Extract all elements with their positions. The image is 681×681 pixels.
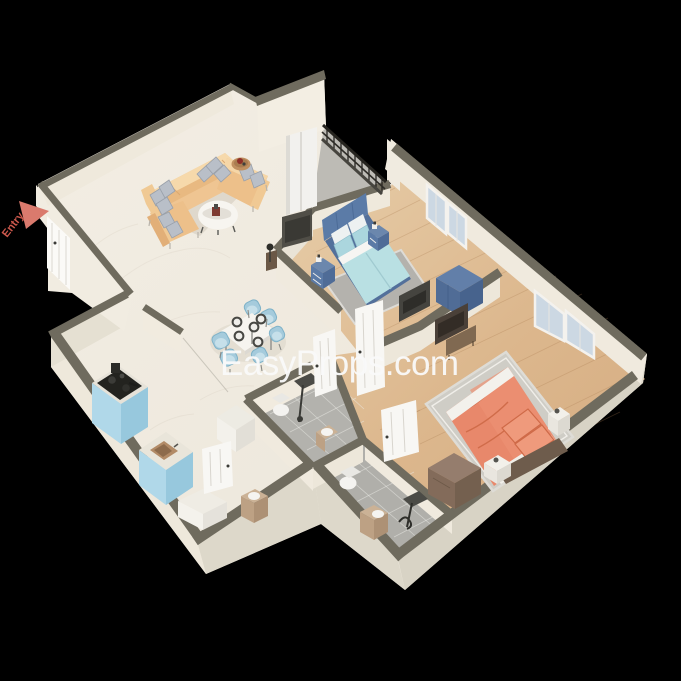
svg-text:EasyProps.com: EasyProps.com: [220, 344, 459, 383]
